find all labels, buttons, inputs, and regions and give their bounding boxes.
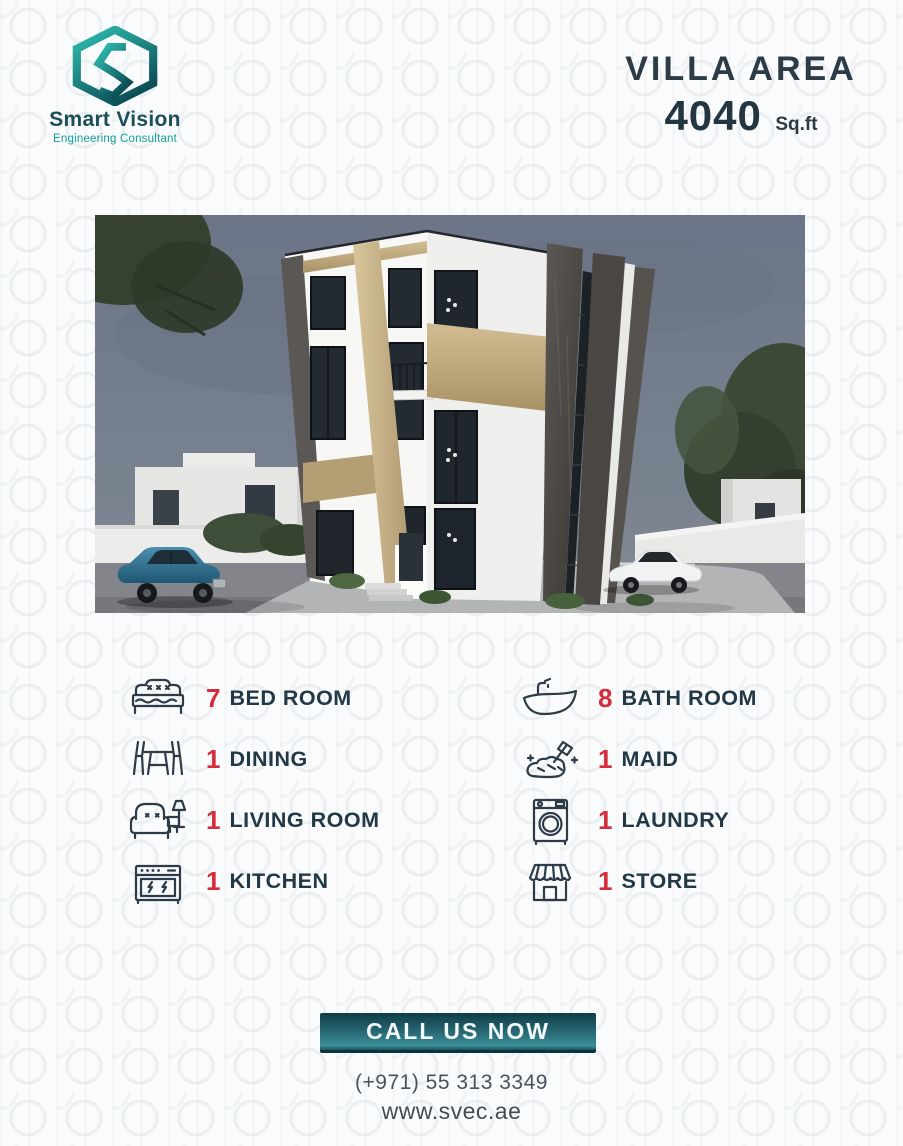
brand-tagline: Engineering Consultant <box>36 133 194 145</box>
feature-maid: 1 MAID <box>518 729 816 790</box>
feature-label: LAUNDRY <box>621 808 729 833</box>
maid-icon <box>518 734 582 786</box>
call-us-now-button[interactable]: CALL US NOW <box>320 1013 596 1053</box>
feature-label: KITCHEN <box>229 869 328 894</box>
features-grid: 7 BED ROOM 1 DINING <box>126 668 816 912</box>
feature-count: 1 <box>598 744 612 775</box>
feature-label: STORE <box>621 869 697 894</box>
bath-icon <box>518 673 582 725</box>
feature-count: 1 <box>206 866 220 897</box>
features-column-right: 8 BATH ROOM 1 MAID <box>518 668 816 912</box>
villa-render <box>95 215 805 613</box>
laundry-icon <box>518 795 582 847</box>
feature-count: 7 <box>206 683 220 714</box>
feature-label: BED ROOM <box>229 686 351 711</box>
features-column-left: 7 BED ROOM 1 DINING <box>126 668 518 912</box>
contact-phone: (+971) 55 313 3349 <box>0 1071 903 1095</box>
feature-store: 1 STORE <box>518 851 816 912</box>
feature-label: LIVING ROOM <box>229 808 379 833</box>
villa-area-block: VILLA AREA 4040 Sq.ft <box>598 50 884 140</box>
villa-building <box>281 231 655 605</box>
living-room-icon <box>126 795 190 847</box>
brand-name: Smart Vision <box>36 108 194 132</box>
villa-area-value: 4040 <box>664 92 761 139</box>
smart-vision-logo-icon <box>69 26 161 106</box>
feature-count: 8 <box>598 683 612 714</box>
flyer-page: Smart Vision Engineering Consultant VILL… <box>0 0 903 1146</box>
villa-area-line: 4040 Sq.ft <box>598 92 884 140</box>
feature-laundry: 1 LAUNDRY <box>518 790 816 851</box>
brand-logo-block: Smart Vision Engineering Consultant <box>36 26 194 145</box>
feature-bed-room: 7 BED ROOM <box>126 668 518 729</box>
kitchen-icon <box>126 856 190 908</box>
feature-count: 1 <box>598 866 612 897</box>
villa-area-title: VILLA AREA <box>598 50 884 89</box>
store-icon <box>518 856 582 908</box>
feature-label: DINING <box>229 747 307 772</box>
feature-bath-room: 8 BATH ROOM <box>518 668 816 729</box>
feature-kitchen: 1 KITCHEN <box>126 851 518 912</box>
villa-render-scene <box>95 215 805 613</box>
feature-label: BATH ROOM <box>621 686 756 711</box>
feature-count: 1 <box>206 805 220 836</box>
feature-living-room: 1 LIVING ROOM <box>126 790 518 851</box>
feature-count: 1 <box>598 805 612 836</box>
feature-label: MAID <box>621 747 678 772</box>
feature-count: 1 <box>206 744 220 775</box>
villa-area-unit: Sq.ft <box>775 114 817 135</box>
contact-website: www.svec.ae <box>0 1098 903 1125</box>
bed-icon <box>126 673 190 725</box>
dining-icon <box>126 734 190 786</box>
feature-dining: 1 DINING <box>126 729 518 790</box>
